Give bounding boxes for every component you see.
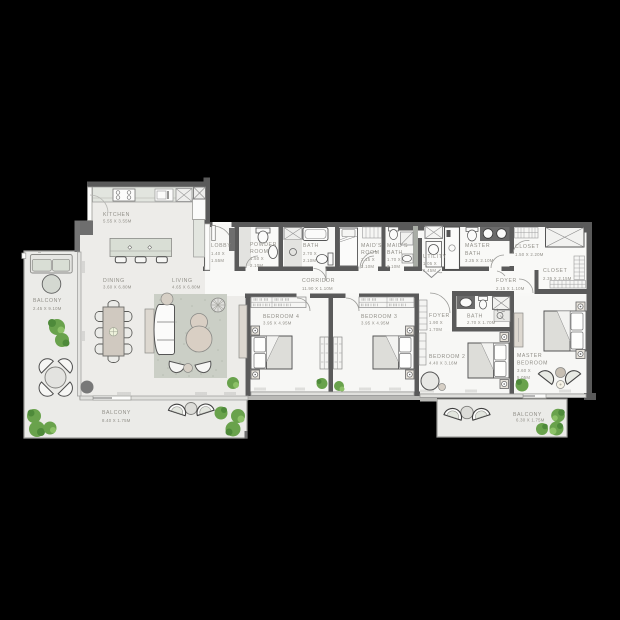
- svg-text:2.10M: 2.10M: [361, 264, 374, 269]
- svg-text:1.50 X 2.20M: 1.50 X 2.20M: [515, 252, 544, 257]
- svg-text:BALCONY: BALCONY: [102, 410, 131, 416]
- svg-text:DINING: DINING: [103, 278, 125, 284]
- svg-text:1.70 X: 1.70 X: [387, 257, 401, 262]
- svg-text:5.05M: 5.05M: [517, 375, 530, 380]
- svg-text:BEDROOM: BEDROOM: [517, 361, 548, 367]
- svg-text:1.70M: 1.70M: [429, 327, 442, 332]
- svg-text:2.70 X: 2.70 X: [303, 251, 317, 256]
- svg-text:KITCHEN: KITCHEN: [103, 212, 130, 218]
- svg-text:BEDROOM 4: BEDROOM 4: [263, 314, 300, 320]
- svg-text:4.65 X 6.80M: 4.65 X 6.80M: [172, 285, 201, 290]
- svg-text:1.55M: 1.55M: [211, 258, 224, 263]
- svg-text:3.95 X 4.95M: 3.95 X 4.95M: [263, 321, 292, 326]
- svg-text:MAID'S: MAID'S: [361, 243, 382, 249]
- svg-text:1.45M: 1.45M: [423, 268, 436, 273]
- svg-text:LOBBY: LOBBY: [211, 243, 231, 249]
- svg-text:FOYER: FOYER: [429, 313, 450, 319]
- svg-text:3.25 X 2.10M: 3.25 X 2.10M: [465, 258, 494, 263]
- svg-text:2.10M: 2.10M: [387, 264, 400, 269]
- svg-text:MAID'S: MAID'S: [387, 243, 408, 249]
- svg-text:3.95 X 4.95M: 3.95 X 4.95M: [361, 321, 390, 326]
- svg-text:BATH: BATH: [387, 250, 403, 256]
- svg-text:11.90 X 1.10M: 11.90 X 1.10M: [302, 286, 333, 291]
- svg-text:1.05 X: 1.05 X: [423, 261, 437, 266]
- svg-text:BATH: BATH: [467, 314, 483, 320]
- svg-text:2.15 X: 2.15 X: [361, 257, 375, 262]
- svg-text:2.10M: 2.10M: [303, 258, 316, 263]
- svg-text:BATH: BATH: [303, 243, 319, 249]
- svg-text:ROOM: ROOM: [250, 249, 269, 255]
- svg-text:MASTER: MASTER: [465, 243, 490, 249]
- svg-text:BEDROOM 2: BEDROOM 2: [429, 354, 466, 360]
- svg-text:2.15 X 1.10M: 2.15 X 1.10M: [496, 286, 525, 291]
- svg-text:2.35 X 2.15M: 2.35 X 2.15M: [543, 276, 572, 281]
- svg-text:2.70 X 1.70M: 2.70 X 1.70M: [467, 320, 496, 325]
- svg-text:FOYER: FOYER: [496, 278, 517, 284]
- svg-text:5.55 X 3.55M: 5.55 X 3.55M: [103, 219, 132, 224]
- svg-text:1.50 X: 1.50 X: [250, 256, 264, 261]
- svg-text:CLOSET: CLOSET: [515, 244, 540, 250]
- svg-text:1.40 X: 1.40 X: [211, 251, 225, 256]
- svg-text:CORRIDOR: CORRIDOR: [302, 278, 335, 284]
- svg-text:3.60 X: 3.60 X: [517, 368, 531, 373]
- svg-text:8.40 X 1.75M: 8.40 X 1.75M: [102, 418, 131, 423]
- svg-text:6.30 X 1.75M: 6.30 X 1.75M: [516, 418, 545, 423]
- svg-text:1.90 X: 1.90 X: [429, 320, 443, 325]
- svg-text:BALCONY: BALCONY: [33, 298, 62, 304]
- svg-text:ROOM: ROOM: [361, 250, 380, 256]
- svg-text:LIVING: LIVING: [172, 278, 193, 284]
- svg-text:CLOSET: CLOSET: [543, 268, 568, 274]
- svg-text:3.60 X 6.80M: 3.60 X 6.80M: [103, 285, 132, 290]
- svg-text:MASTER: MASTER: [517, 353, 542, 359]
- svg-text:POWDER: POWDER: [250, 242, 277, 248]
- svg-text:2.10M: 2.10M: [250, 263, 263, 268]
- svg-text:2.45 X 9.10M: 2.45 X 9.10M: [33, 306, 62, 311]
- svg-text:BATH: BATH: [465, 251, 481, 257]
- svg-text:4.40 X 3.16M: 4.40 X 3.16M: [429, 361, 458, 366]
- svg-text:UTILITY: UTILITY: [423, 254, 447, 260]
- svg-text:BEDROOM 3: BEDROOM 3: [361, 314, 398, 320]
